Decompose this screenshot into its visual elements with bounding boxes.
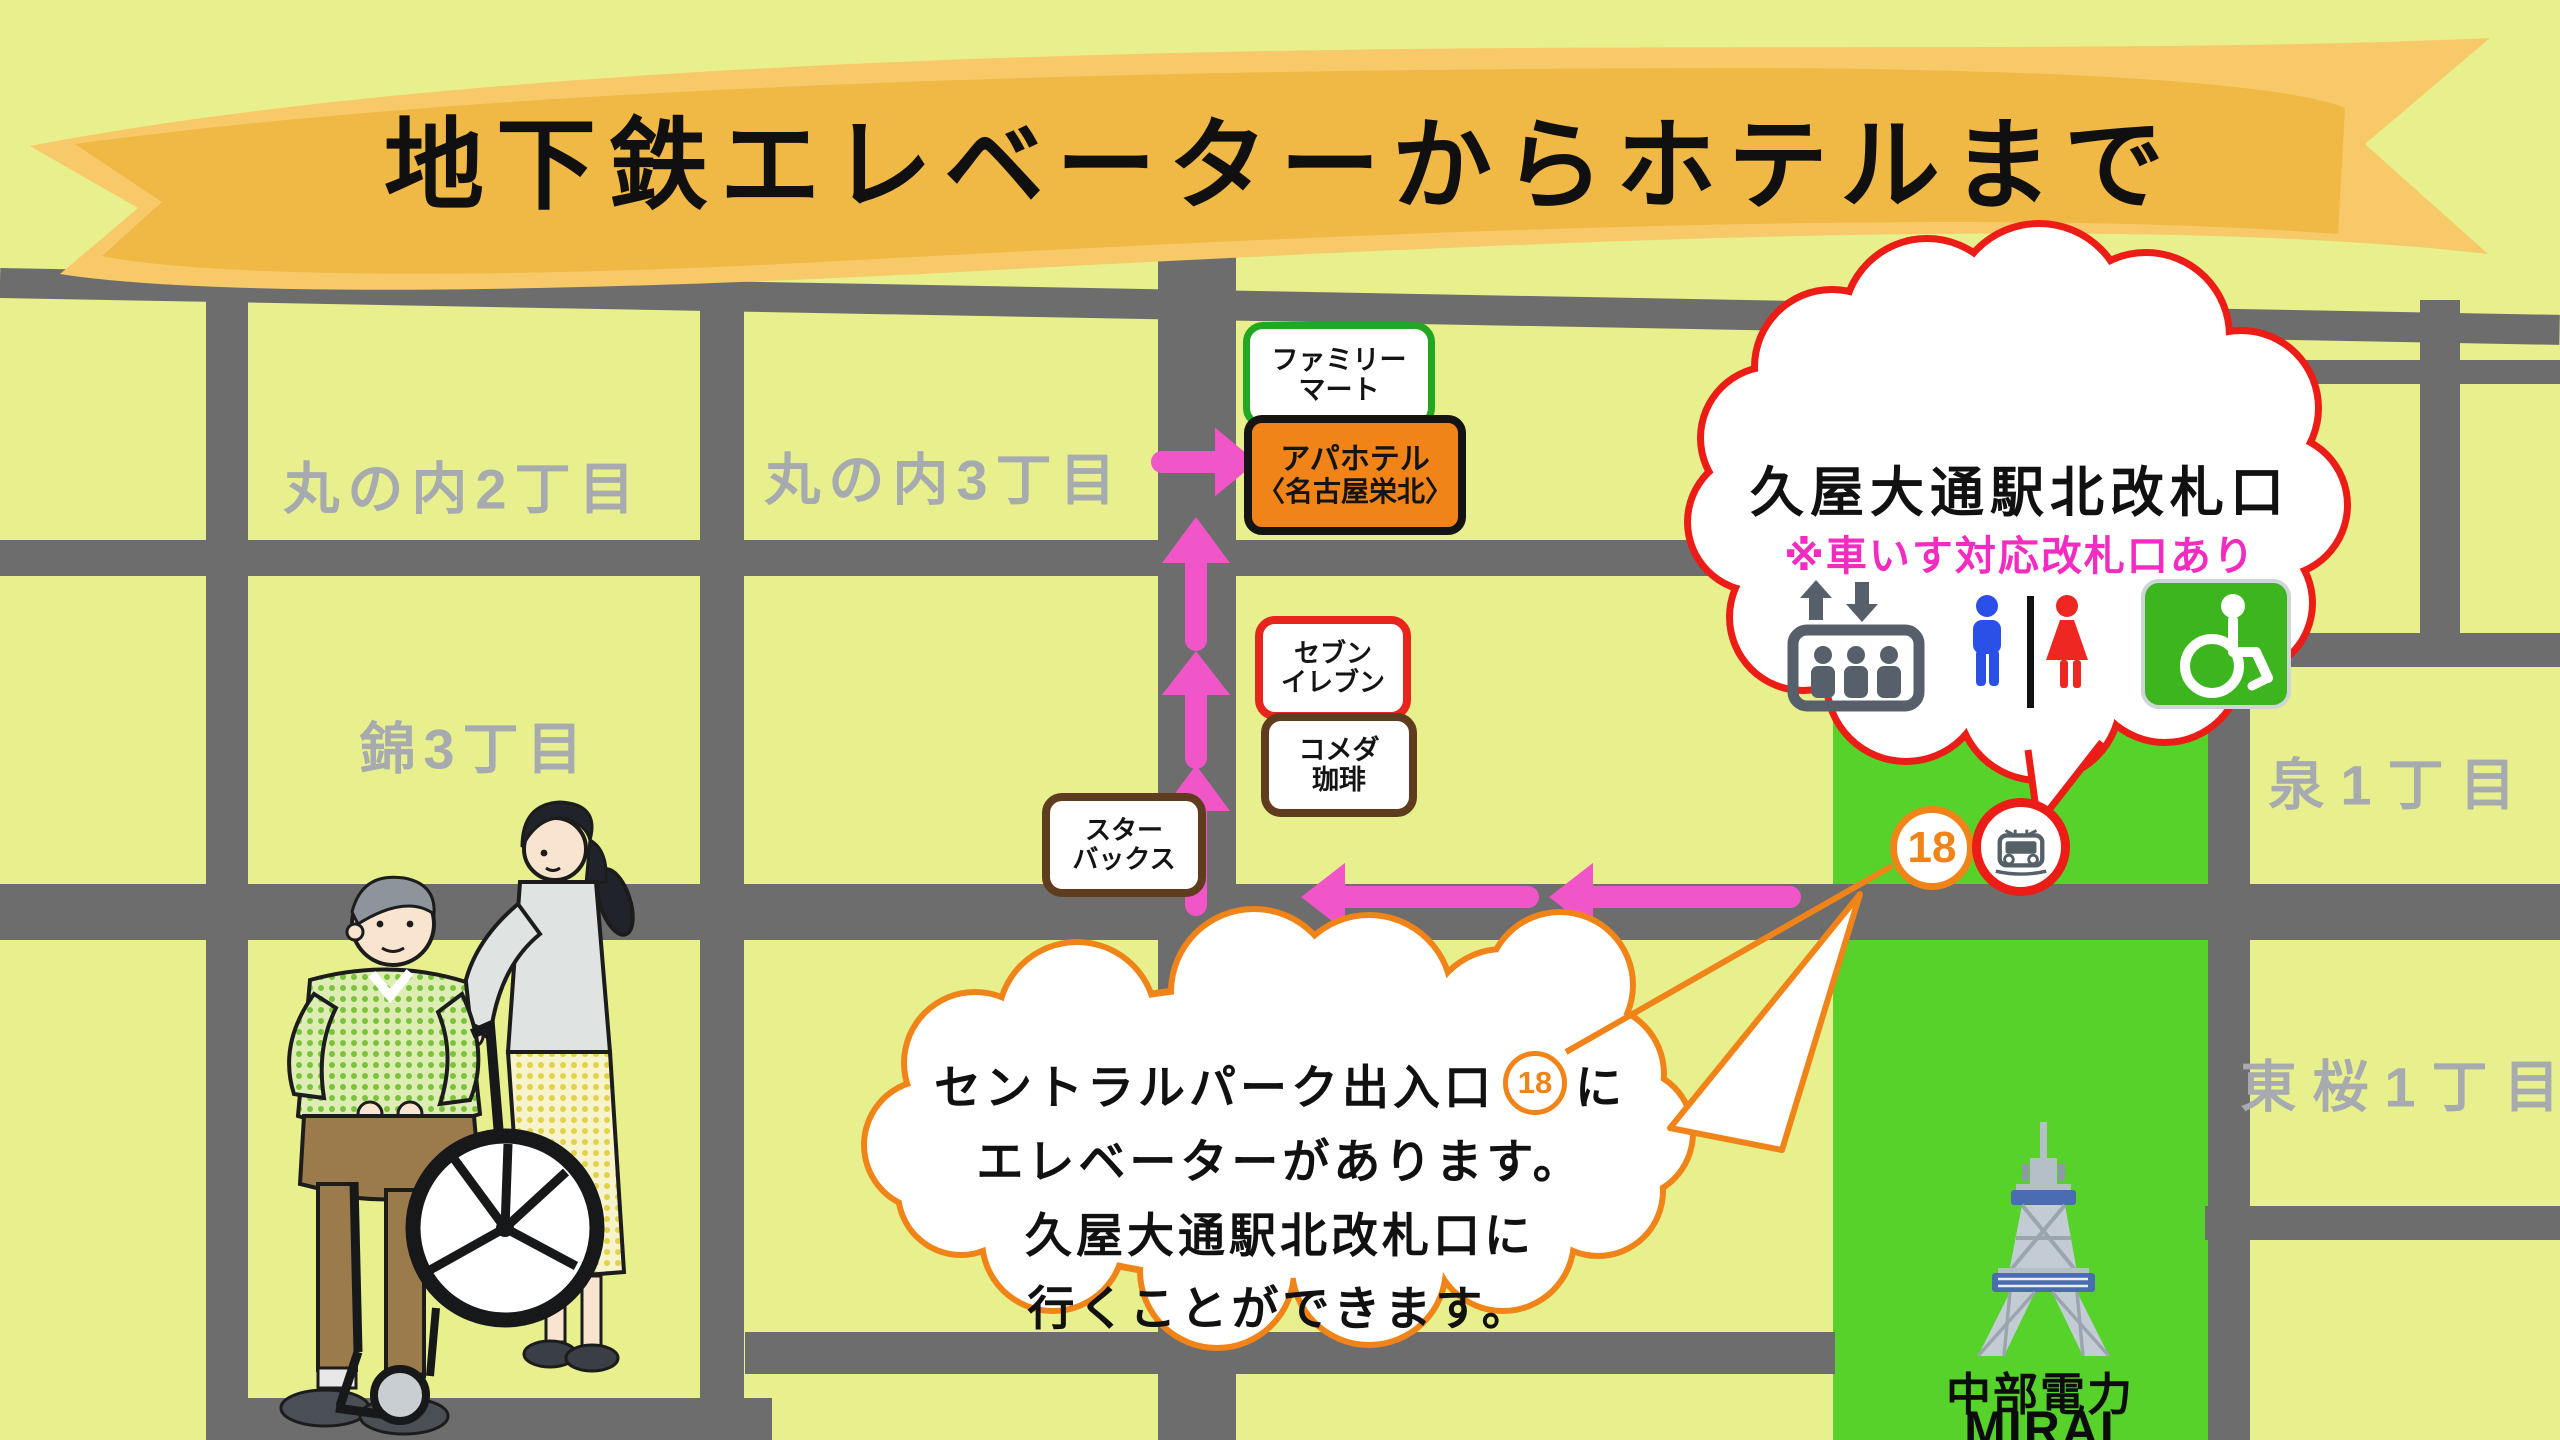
- train-icon: [1992, 818, 2050, 876]
- wheelchair-user-illustration: [118, 752, 758, 1440]
- mirai-tower-icon: [1948, 1122, 2138, 1358]
- train-station-marker: [1972, 798, 2070, 896]
- exit-18-badge: 18: [1890, 806, 1974, 890]
- info-bubble-tail: [1670, 894, 1860, 1150]
- access-map: 丸の内2丁目 丸の内3丁目 錦3丁目 泉1丁目 東桜1丁目 地下鉄エレベーターか…: [0, 0, 2560, 1440]
- tower-name-english: MIRAI TOWER: [1865, 1400, 2215, 1440]
